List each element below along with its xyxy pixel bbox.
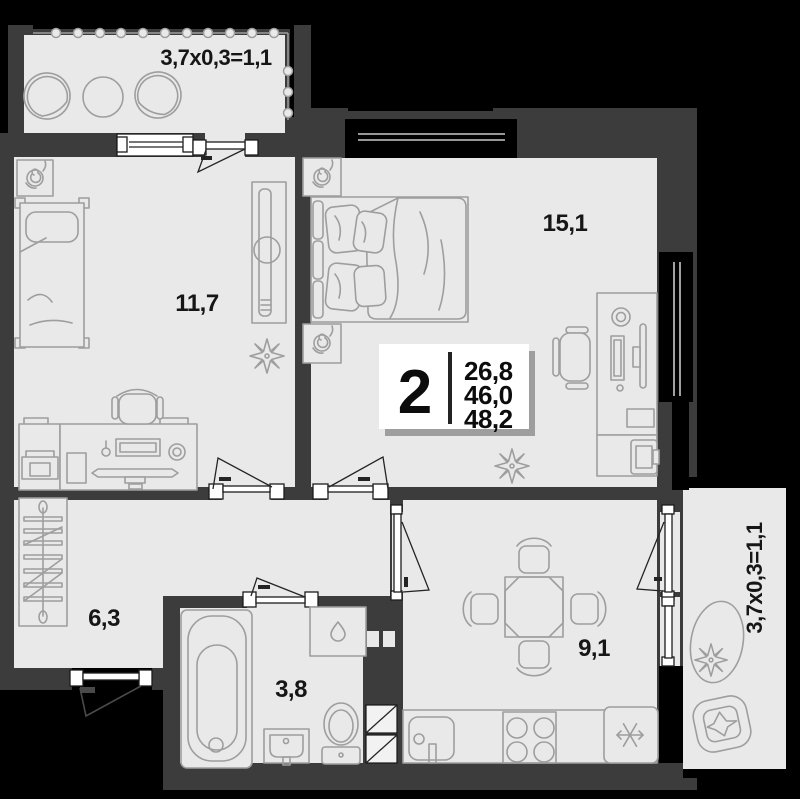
single-bed <box>15 198 89 348</box>
cup-icon <box>169 444 185 460</box>
pillow <box>352 210 387 254</box>
keyboard-icon <box>116 439 160 456</box>
label-bedroom: 11,7 <box>175 290 219 317</box>
nightstand <box>303 324 341 363</box>
label-living: 15,1 <box>543 210 588 237</box>
label-balcony-right: 3,7x0,3=1,1 <box>742 522 767 634</box>
bedroom-balcony-window <box>117 134 193 156</box>
floor-plan-canvas: 2 26,8 46,0 48,2 3,7x0,3=1,1 11,7 15,1 6… <box>0 0 800 799</box>
round-table <box>83 77 123 117</box>
wardrobe <box>252 182 286 323</box>
area-total-value: 48,2 <box>464 404 513 434</box>
nightstand <box>303 158 341 196</box>
desk <box>19 418 197 490</box>
label-hallway: 6,3 <box>88 605 120 632</box>
floor-plan: 2 26,8 46,0 48,2 3,7x0,3=1,1 11,7 15,1 6… <box>0 0 800 799</box>
keyboard-icon <box>611 336 624 380</box>
toilet <box>322 703 360 764</box>
info-plate: 2 26,8 46,0 48,2 <box>379 344 535 436</box>
rooms-count: 2 <box>398 358 432 427</box>
washing-machine <box>310 607 366 656</box>
dining-table <box>505 577 563 637</box>
plate-divider <box>448 352 452 424</box>
fridge <box>604 707 658 763</box>
living-window-right <box>659 252 693 402</box>
pillow <box>354 265 387 307</box>
bathtub <box>181 610 252 768</box>
desk-chair <box>112 390 163 425</box>
living-window-outer <box>348 100 493 111</box>
cup-icon <box>612 308 630 326</box>
living-window-top <box>345 119 517 158</box>
printer-icon <box>631 440 659 474</box>
label-bathroom: 3,8 <box>275 676 307 703</box>
mouse-icon <box>617 385 623 391</box>
sink <box>264 729 309 765</box>
label-kitchen: 9,1 <box>578 635 610 662</box>
label-balcony-top: 3,7x0,3=1,1 <box>160 45 272 70</box>
office-desk <box>597 293 659 476</box>
double-bed <box>311 197 468 322</box>
printer-icon <box>22 451 58 479</box>
coat-rack <box>19 498 67 626</box>
